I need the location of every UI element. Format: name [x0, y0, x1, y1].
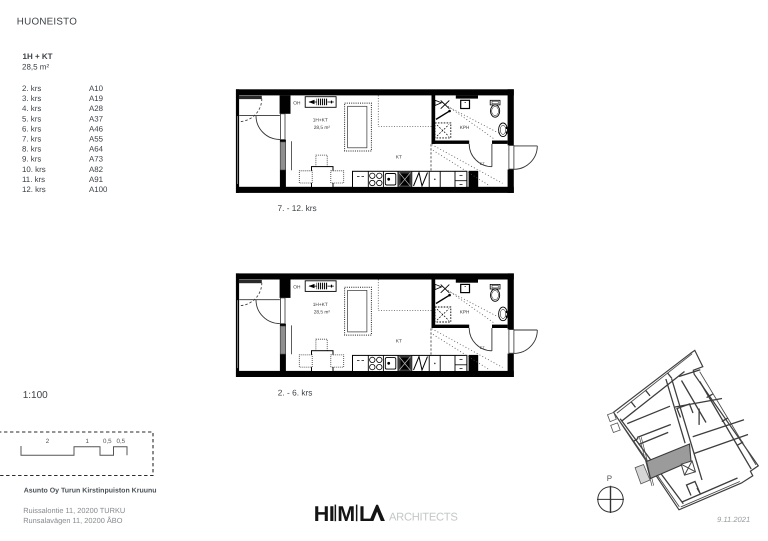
svg-text:1: 1 [86, 438, 90, 445]
svg-text:5. krs: 5. krs [22, 114, 41, 123]
svg-text:A46: A46 [89, 124, 104, 133]
svg-text:L: L [359, 502, 372, 526]
svg-text:A100: A100 [89, 185, 108, 194]
svg-text:3. krs: 3. krs [22, 94, 41, 103]
svg-text:A28: A28 [89, 104, 104, 113]
svg-text:2. krs: 2. krs [22, 84, 41, 93]
svg-text:A73: A73 [89, 155, 104, 164]
svg-text:A37: A37 [89, 114, 103, 123]
svg-text:11. krs: 11. krs [22, 175, 45, 184]
svg-text:9.11.2021: 9.11.2021 [717, 515, 750, 524]
svg-text:A19: A19 [89, 94, 104, 103]
svg-text:P: P [607, 474, 612, 483]
svg-text:0,5: 0,5 [117, 438, 126, 445]
svg-text:2. - 6. krs: 2. - 6. krs [278, 387, 313, 397]
svg-text:8. krs: 8. krs [22, 145, 41, 154]
svg-text:A10: A10 [89, 84, 104, 93]
svg-text:28,5 m²: 28,5 m² [22, 63, 49, 72]
svg-text:HUONEISTO: HUONEISTO [17, 17, 77, 28]
svg-text:9. krs: 9. krs [22, 155, 41, 164]
svg-text:ARCHITECTS: ARCHITECTS [389, 512, 457, 524]
svg-text:A55: A55 [89, 135, 104, 144]
svg-text:Ruissalontie 11, 20200 TURKU: Ruissalontie 11, 20200 TURKU [23, 506, 125, 515]
svg-text:1:100: 1:100 [23, 390, 48, 401]
svg-text:1H + KT: 1H + KT [23, 52, 53, 61]
svg-text:Asunto Oy Turun Kirstinpuiston: Asunto Oy Turun Kirstinpuiston Kruunu [24, 486, 157, 494]
svg-text:7. krs: 7. krs [22, 135, 41, 144]
svg-text:A91: A91 [89, 175, 103, 184]
svg-text:Runsalavägen 11, 20200 ÅBO: Runsalavägen 11, 20200 ÅBO [23, 516, 123, 525]
svg-text:12. krs: 12. krs [22, 185, 46, 194]
svg-text:0,5: 0,5 [103, 438, 112, 445]
svg-text:M: M [337, 502, 355, 526]
svg-text:2: 2 [46, 438, 50, 445]
svg-text:A64: A64 [89, 145, 104, 154]
svg-text:A82: A82 [89, 165, 103, 174]
svg-text:HI: HI [314, 502, 335, 526]
svg-text:4. krs: 4. krs [22, 104, 41, 113]
svg-text:6. krs: 6. krs [22, 124, 41, 133]
svg-text:10. krs: 10. krs [22, 165, 46, 174]
svg-text:7. - 12. krs: 7. - 12. krs [278, 203, 317, 213]
